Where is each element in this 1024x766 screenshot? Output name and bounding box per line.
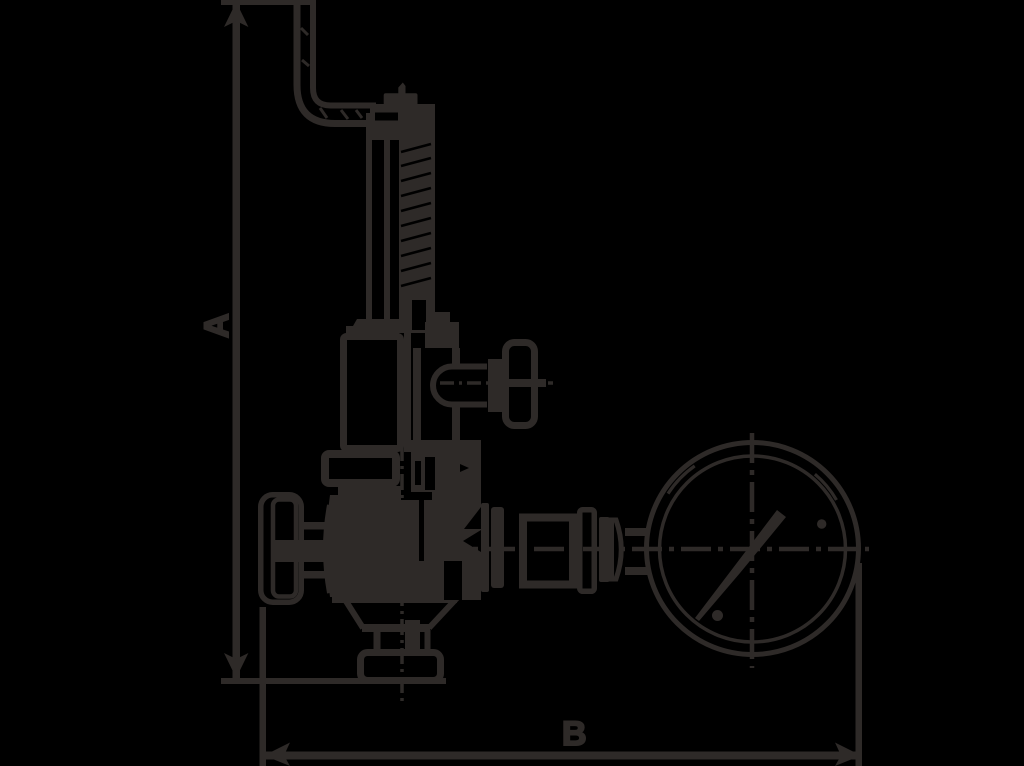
svg-text:A: A: [198, 313, 236, 338]
svg-text:B: B: [562, 715, 587, 753]
